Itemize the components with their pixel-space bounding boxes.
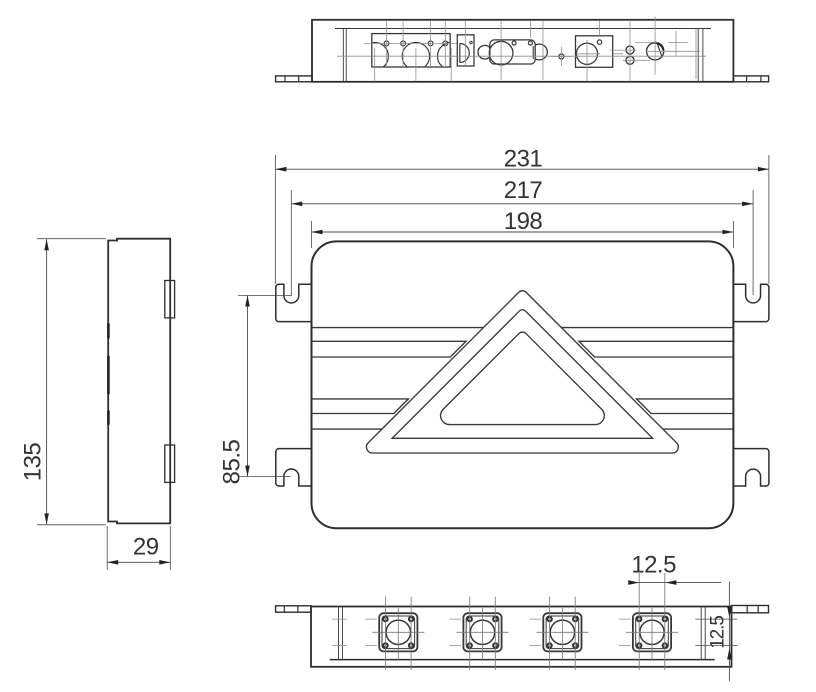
svg-text:29: 29	[133, 534, 159, 561]
svg-text:198: 198	[504, 208, 543, 235]
svg-text:217: 217	[504, 177, 543, 204]
svg-text:12.5: 12.5	[631, 552, 676, 579]
svg-text:85.5: 85.5	[219, 439, 246, 484]
svg-text:231: 231	[504, 146, 543, 173]
svg-text:135: 135	[20, 443, 47, 482]
svg-text:12.5: 12.5	[708, 616, 729, 649]
